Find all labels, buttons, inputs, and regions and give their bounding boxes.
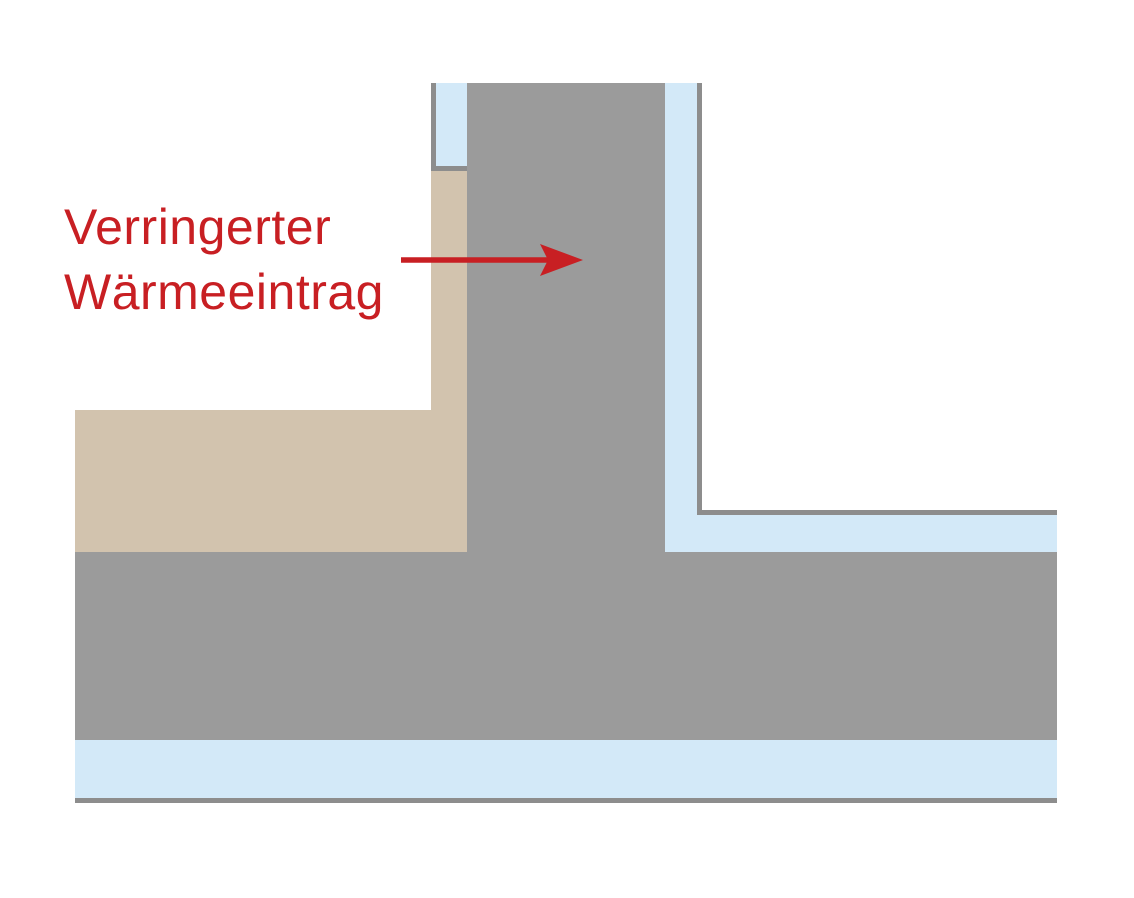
insulation-top-left bbox=[431, 83, 467, 171]
insulation-right-horizontal bbox=[697, 515, 1057, 552]
annotation-label-line1: Verringerter bbox=[64, 195, 384, 260]
annotation-label-line2: Wärmeeintrag bbox=[64, 260, 384, 325]
insulation-right-vertical bbox=[665, 83, 697, 552]
soil-strip-against-wall bbox=[431, 171, 467, 411]
concrete-floor-slab bbox=[75, 552, 1057, 740]
outline-right-horizontal bbox=[697, 510, 1057, 515]
insulation-under-slab bbox=[75, 740, 1057, 798]
outline-bottom bbox=[75, 798, 1057, 803]
outline-right-vertical bbox=[697, 83, 702, 515]
construction-detail-diagram: Verringerter Wärmeeintrag bbox=[0, 0, 1134, 898]
concrete-wall bbox=[467, 83, 665, 552]
annotation-label: Verringerter Wärmeeintrag bbox=[64, 195, 384, 325]
soil-block-left bbox=[75, 410, 467, 552]
annotation-arrow-icon bbox=[398, 240, 588, 280]
